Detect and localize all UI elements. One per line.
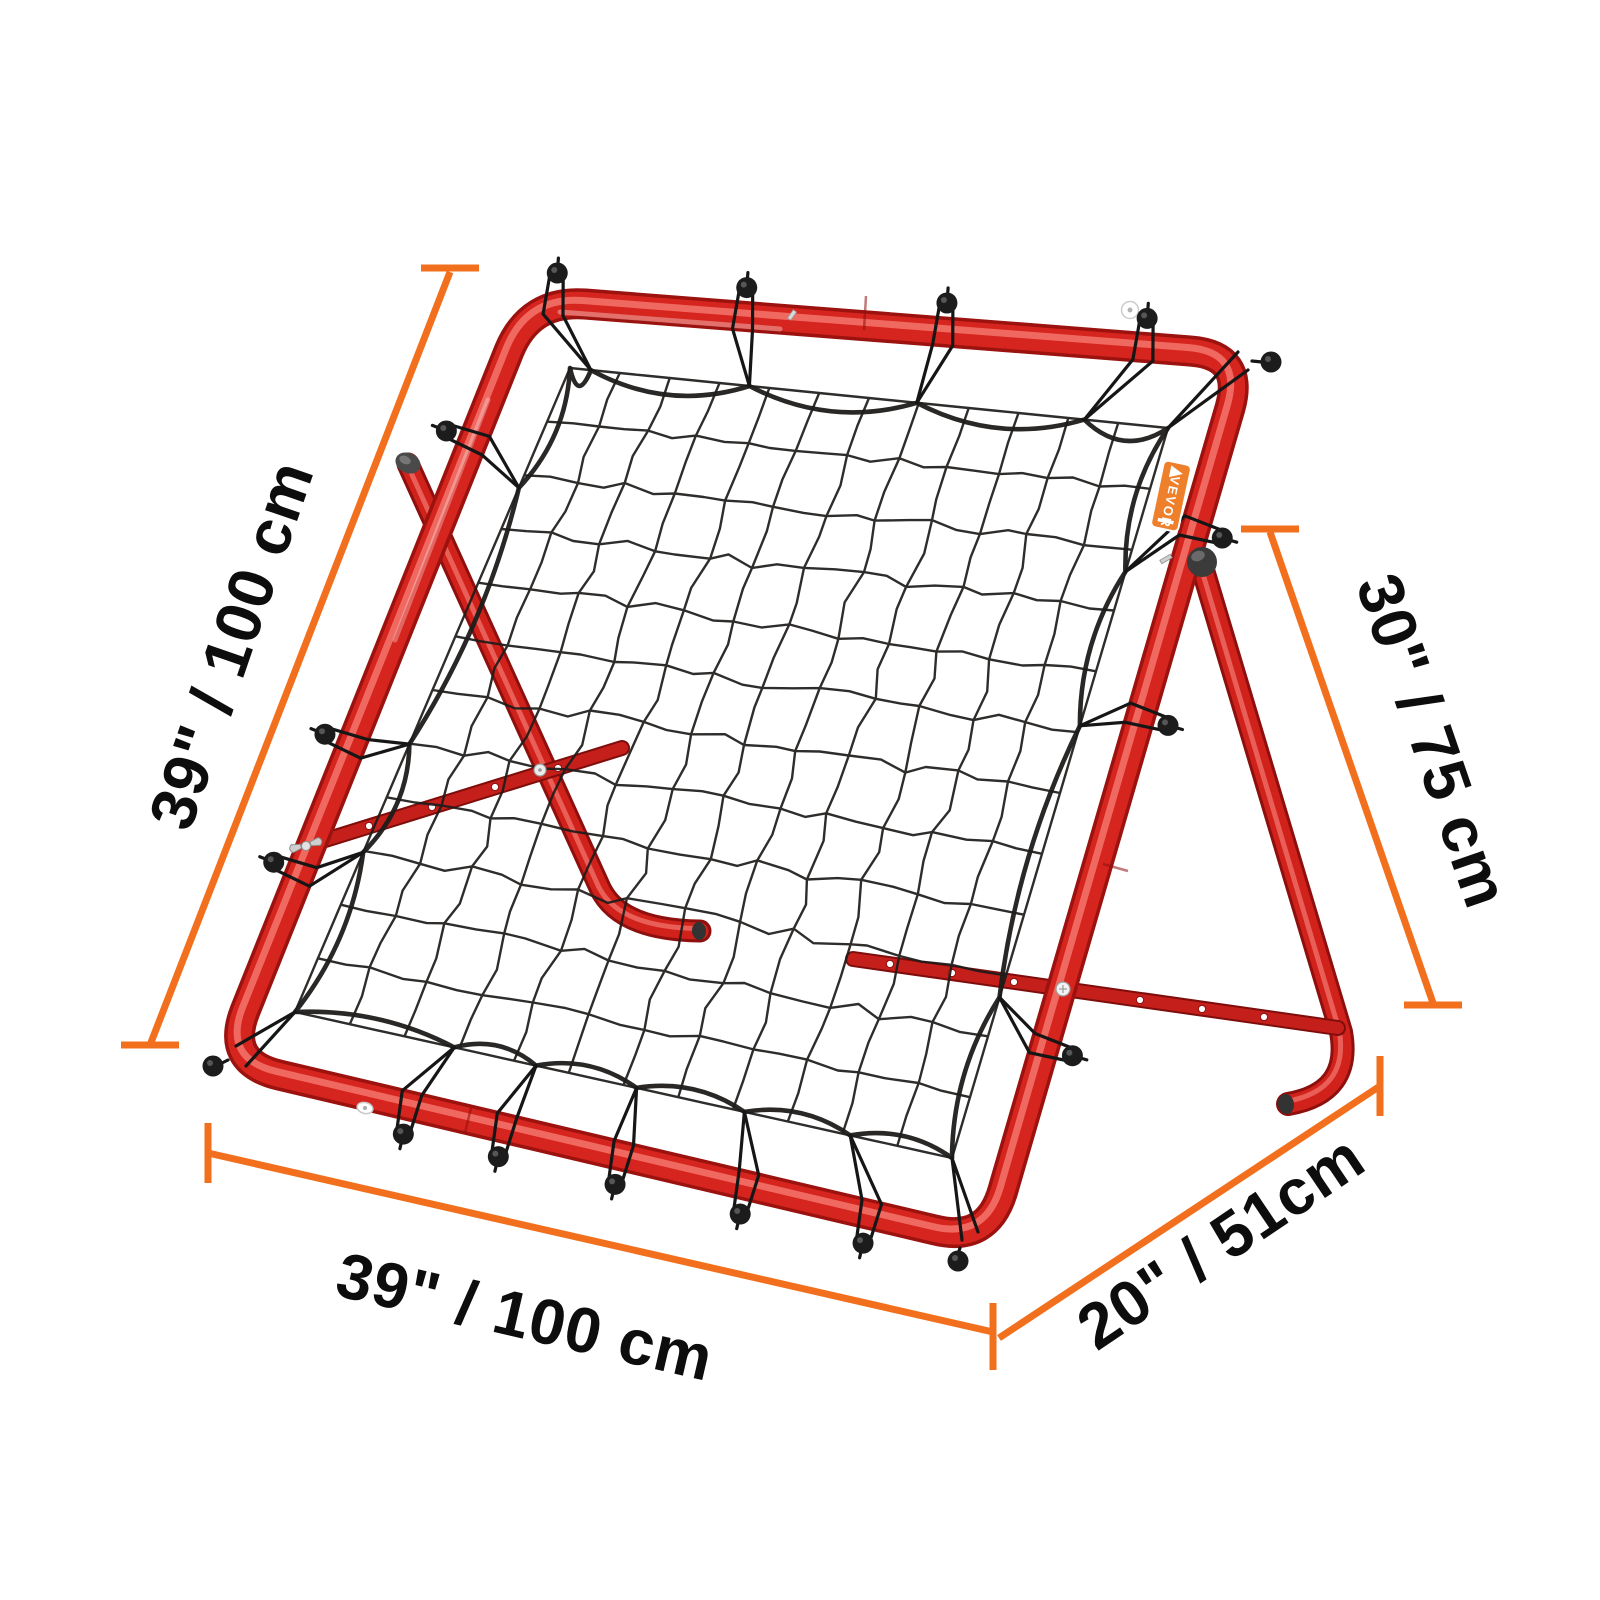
screw	[534, 764, 546, 776]
dimension-label-bottom: 39" / 100 cm	[330, 1238, 720, 1395]
sticker	[1122, 302, 1139, 319]
dimension-label-depth: 20" / 51cm	[1064, 1120, 1377, 1363]
dimension-label-left: 39" / 100 cm	[135, 452, 328, 838]
product-dimension-diagram: VEVOR 39" / 100 cm 30" / 75 cm 39" / 100…	[0, 0, 1600, 1600]
dimension-label-right: 30" / 75 cm	[1342, 565, 1523, 917]
bolt	[1056, 982, 1070, 996]
dimension-line-left	[121, 268, 479, 1045]
adjustment-bar-right	[853, 959, 1338, 1028]
pivot-knob	[1187, 547, 1217, 577]
rebounder-diagram-svg: VEVOR 39" / 100 cm 30" / 75 cm 39" / 100…	[0, 0, 1600, 1600]
